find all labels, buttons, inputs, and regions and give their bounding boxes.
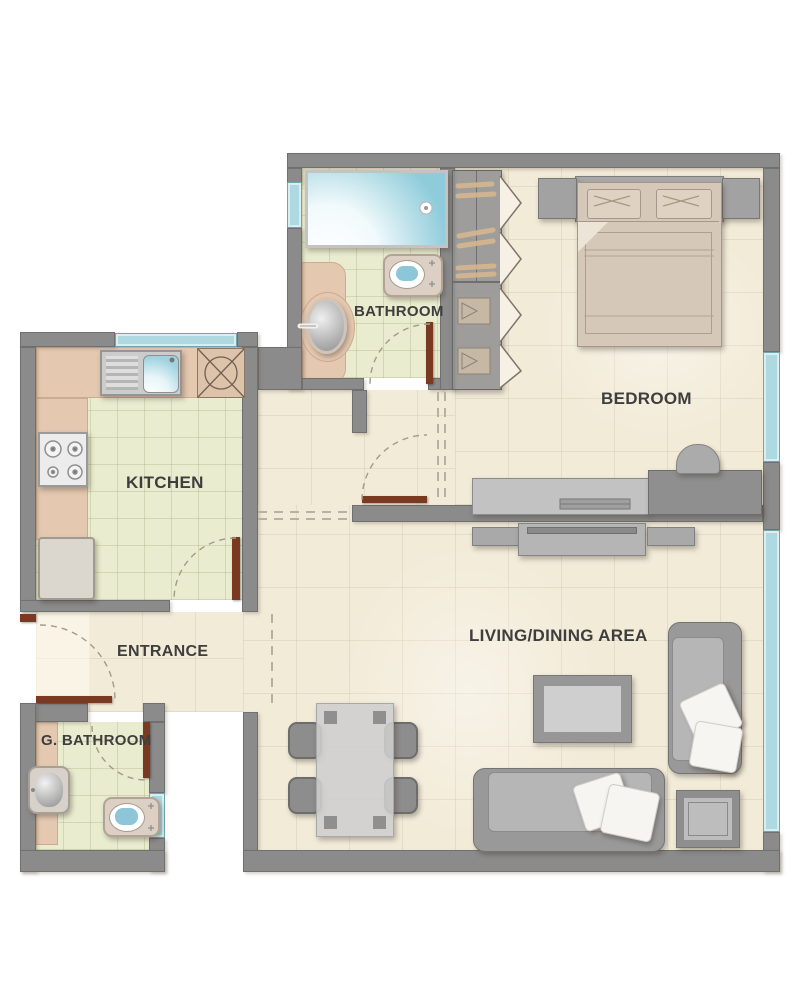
bathroom-sink [306,298,347,354]
side-table-inner [688,802,728,836]
wall-segment [763,462,780,530]
bathroom-door [426,322,433,384]
coffee-table [533,675,632,743]
guest-bathroom-label: G. BATHROOM [41,732,152,749]
toilet-water [396,266,418,281]
wardrobe [452,170,502,390]
throw-pillow [599,783,660,843]
wall-segment [258,347,302,390]
bathroom-window [287,182,302,228]
tv-console-center [518,523,646,556]
entrance-door-jamb [20,614,36,622]
entrance-label: ENTRANCE [117,643,208,661]
blanket-fold [578,222,608,252]
throw-pillow [688,720,743,774]
table-leg [373,816,386,829]
kitchen-label: KITCHEN [126,473,204,493]
living-window [763,530,780,832]
desk [472,478,650,515]
wall-segment [20,347,36,612]
bed [577,182,722,347]
fridge [38,537,95,600]
wall-segment [302,378,364,390]
nightstand-right [722,178,760,219]
kitchen-sink-unit [100,350,182,396]
drainboard [106,356,138,390]
stove [38,432,88,487]
table-leg [324,816,337,829]
guest-sink [28,766,70,814]
bathroom-label: BATHROOM [354,303,444,320]
tv-console-left [472,527,519,546]
wardrobe-divider [476,171,477,281]
tv-screen [527,527,637,534]
toilet [383,254,443,297]
wall-segment [20,332,115,347]
sink-bowl [143,355,179,393]
entrance-door [36,696,112,703]
bedroom-door [362,496,427,503]
kitchen-window [115,333,237,347]
tv-console-right [647,527,695,546]
washing-machine [197,348,245,398]
guest-bathroom-door [143,722,150,778]
wall-segment [237,332,258,347]
bed-pillow [656,189,712,219]
wall-segment [287,153,780,168]
floor-plan: BATHROOM BEDROOM KITCHEN ENTRANCE G. BAT… [0,0,800,1000]
guest-toilet-water [115,808,138,825]
wall-segment [20,600,170,612]
shower [305,170,448,248]
wardrobe-divider [453,281,501,283]
guest-sink-basin [35,773,63,807]
kitchen-door [232,537,240,600]
desk-return [648,470,762,515]
wall-segment [243,850,780,872]
living-dining-label: LIVING/DINING AREA [469,626,648,646]
bedroom-label: BEDROOM [601,389,692,409]
bed-pillow [587,189,641,219]
nightstand-left [538,178,577,219]
bedroom-window [763,352,780,462]
guest-toilet [103,797,160,837]
wall-segment [352,390,367,433]
side-table [676,790,740,848]
table-leg [373,711,386,724]
wall-segment [143,703,165,722]
wall-segment [20,850,165,872]
entry-mat [36,612,90,703]
table-leg [324,711,337,724]
wall-segment [763,168,780,352]
dining-table [316,703,394,837]
wall-segment [243,712,258,853]
bed-blanket [578,221,719,345]
